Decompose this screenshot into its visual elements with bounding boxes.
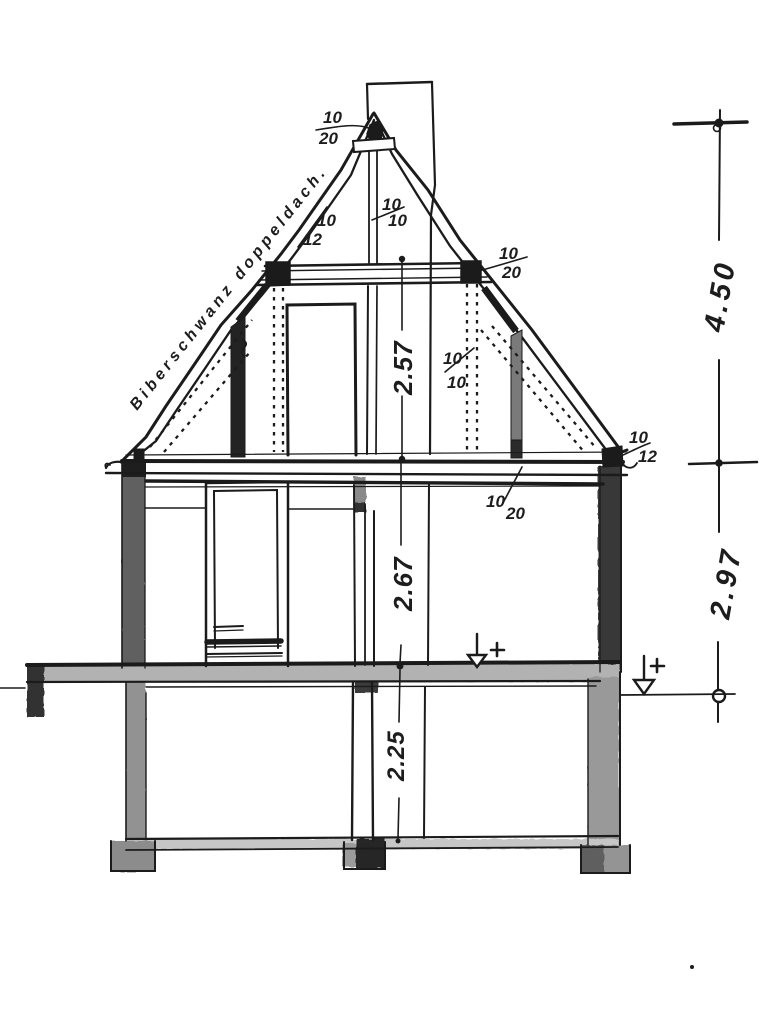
svg-text:2.25: 2.25 [383, 730, 410, 782]
svg-text:10: 10 [317, 211, 336, 230]
svg-text:2.97: 2.97 [704, 544, 748, 622]
svg-text:20: 20 [505, 504, 525, 523]
svg-text:10: 10 [388, 211, 407, 230]
svg-text:4.50: 4.50 [698, 257, 742, 335]
svg-text:12: 12 [303, 230, 322, 249]
svg-text:10: 10 [323, 108, 342, 127]
svg-text:10: 10 [443, 349, 462, 368]
svg-text:2.67: 2.67 [388, 556, 418, 612]
svg-text:10: 10 [447, 373, 466, 392]
svg-text:2.57: 2.57 [388, 340, 418, 396]
svg-text:20: 20 [501, 263, 521, 282]
svg-text:12: 12 [638, 447, 657, 466]
svg-text:10: 10 [486, 492, 505, 511]
svg-text:10: 10 [499, 244, 518, 263]
svg-text:20: 20 [318, 129, 338, 148]
svg-text:10: 10 [629, 428, 648, 447]
